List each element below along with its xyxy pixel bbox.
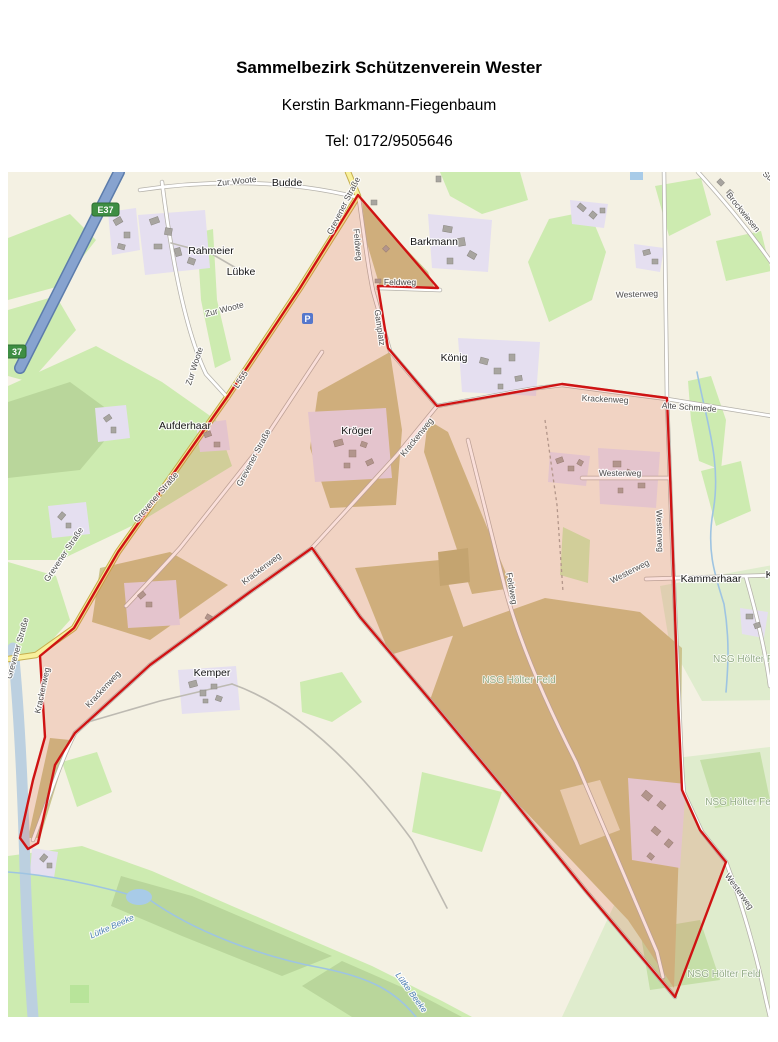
place-label-budde: Budde [272,177,303,189]
place-label-kemper: Kemper [194,667,231,679]
district-map: Zur Woote Zur Woote Zur Woote L555 Greve… [8,172,770,1017]
contact-phone: Tel: 0172/9505646 [0,133,778,151]
road-label-feldweg-2: Feldweg [384,277,416,287]
contact-name: Kerstin Barkmann-Fiegenbaum [0,97,778,115]
place-label-kammerhaar: Kammerhaar [681,573,742,585]
motorway-badge-text: E37 [97,205,113,215]
map-canvas: Zur Woote Zur Woote Zur Woote L555 Greve… [8,172,770,1017]
place-label-ka-partial: Ka [766,569,770,581]
place-label-koenig: König [441,352,468,364]
motorway-badge-e37: E37 [92,203,119,216]
parking-icon-text: P [304,314,310,324]
place-label-luebke: Lübke [227,266,256,278]
pond [630,172,643,180]
road-label-westerweg-1: Westerweg [616,288,659,299]
place-label-barkmann: Barkmann [410,236,458,248]
area-label-nsg-4: NSG Hölter Feld [687,969,760,980]
road-label-westerweg-2: Westerweg [599,468,642,478]
motorway-badge-partial-text: 37 [12,347,22,357]
area-label-nsg-1: NSG Hölter Feld [482,675,555,686]
page-title: Sammelbezirk Schützenverein Wester [0,58,778,78]
pond [126,889,152,905]
road-label-westerweg-3: Westerweg [654,510,665,553]
place-label-rahmeier: Rahmeier [188,245,234,257]
place-label-aufderhaar: Aufderhaar [159,420,211,432]
area-label-nsg-3: NSG Hölter Fe [705,797,770,808]
parking-icon: P [302,313,313,324]
motorway-badge-e37-partial: 37 [8,345,26,358]
place-label-kroeger: Kröger [341,425,373,437]
area-label-nsg-2: NSG Hölter F [713,654,770,665]
